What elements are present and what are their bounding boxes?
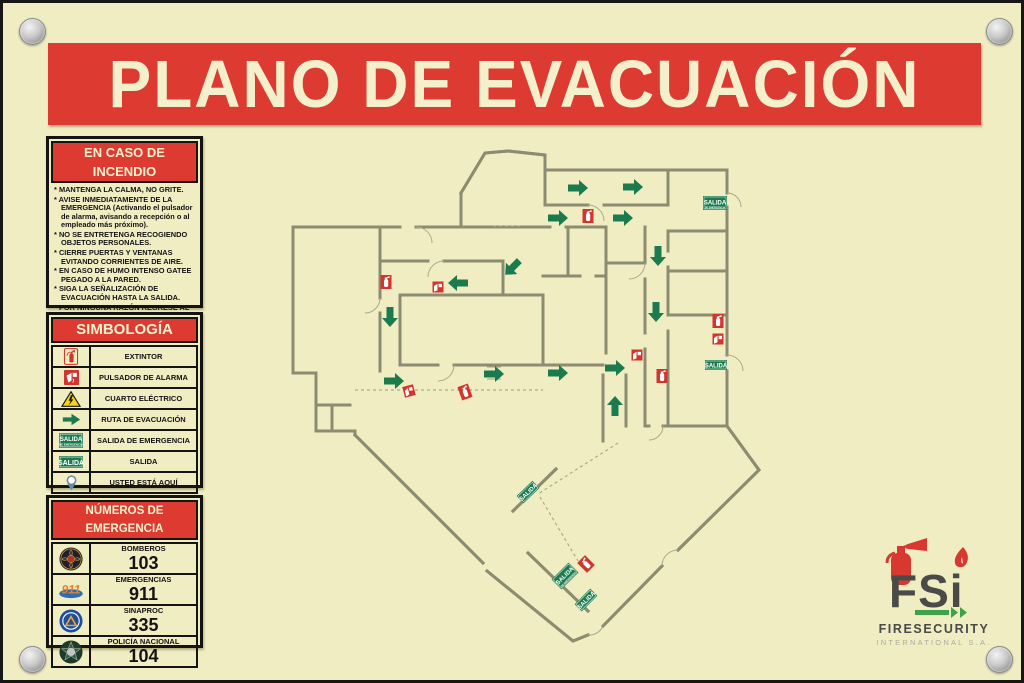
extinguisher-icon (583, 209, 594, 223)
emergency-number-row: BOMBEROS 103 (51, 542, 198, 575)
emergency-number-row: SINAPROC 335 (51, 606, 198, 637)
title-banner: PLANO DE EVACUACIÓN (48, 43, 981, 125)
legend-row: SALIDA SALIDA (51, 452, 198, 473)
instruction-item: MANTENGA LA CALMA, NO GRITE. (54, 186, 196, 195)
alarm-button-icon (53, 368, 91, 387)
legend-header: SIMBOLOGÍA (51, 317, 198, 343)
screw-bottom-left (19, 646, 46, 673)
phone-number: 103 (128, 554, 158, 572)
exit-sign: SALIDA (705, 360, 728, 370)
screw-top-right (986, 18, 1013, 45)
911-badge: 911 (53, 575, 91, 604)
service-name: EMERGENCIAS (116, 576, 172, 584)
page-title: PLANO DE EVACUACIÓN (109, 45, 921, 123)
sinaproc-badge (53, 606, 91, 635)
evacuation-route-icon (53, 410, 91, 429)
legend-panel: SIMBOLOGÍA EXTINTOR PULSADOR DE ALARMA C… (46, 312, 203, 488)
alarm-button-icon (632, 350, 643, 361)
instruction-item: NO SE ENTRETENGA RECOGIENDO OBJETOS PERS… (54, 231, 196, 248)
legend-row: EXTINTOR (51, 345, 198, 368)
evacuation-arrow-icon (548, 365, 568, 381)
instruction-item: EN CASO DE HUMO INTENSO GATEE PEGADO A L… (54, 267, 196, 284)
instruction-item: SIGA LA SEÑALIZACIÓN DE EVACUACIÓN HASTA… (54, 285, 196, 302)
emergency-numbers-rows: BOMBEROS 103 911 EMERGENCIAS 911 SINA (51, 542, 198, 668)
service-name: BOMBEROS (121, 545, 165, 553)
evacuation-arrow-icon (548, 210, 568, 226)
emergency-numbers-panel: NÚMEROS DE EMERGENCIA BOMBEROS 103 911 E… (46, 495, 203, 648)
svg-text:SALIDA: SALIDA (705, 363, 728, 369)
fsi-logo: FSi FIRESECURITY INTERNATIONAL S.A. (875, 537, 995, 652)
legend-label: CUARTO ELÉCTRICO (91, 389, 196, 408)
legend-row: USTED ESTÁ AQUÍ (51, 473, 198, 494)
service-name: POLICÍA NACIONAL (108, 638, 180, 646)
extinguisher-icon (713, 314, 724, 328)
extinguisher-icon (53, 347, 91, 366)
evacuation-arrow-icon (648, 302, 664, 322)
national-police-badge (53, 637, 91, 666)
emergency-numbers-header: NÚMEROS DE EMERGENCIA (51, 500, 198, 540)
legend-label: SALIDA (91, 452, 196, 471)
alarm-button-icon (433, 282, 444, 293)
emergency-number-row: POLICÍA NACIONAL 104 (51, 637, 198, 668)
evacuation-arrow-icon (607, 396, 623, 416)
alarm-button-icon (713, 334, 724, 345)
emergency-exit-sign: SALIDA DE EMERGENCIA (552, 563, 579, 590)
emergency-exit-sign-icon: SALIDADE EMERGENCIA (53, 431, 91, 450)
legend-row: RUTA DE EVACUACIÓN (51, 410, 198, 431)
evacuation-arrow-icon (382, 307, 398, 327)
phone-number: 104 (128, 647, 158, 665)
svg-text:SALIDA: SALIDA (59, 459, 83, 466)
door-arcs (365, 193, 743, 635)
legend-rows: EXTINTOR PULSADOR DE ALARMA CUARTO ELÉCT… (51, 345, 198, 494)
electrical-room-icon (53, 389, 91, 408)
legend-row: SALIDADE EMERGENCIA SALIDA DE EMERGENCIA (51, 431, 198, 452)
legend-label: PULSADOR DE ALARMA (91, 368, 196, 387)
service-name: SINAPROC (124, 607, 164, 615)
evacuation-arrow-icon (623, 179, 643, 195)
instruction-item: AVISE INMEDIATAMENTE DE LA EMERGENCIA (A… (54, 196, 196, 230)
firefighters-badge (53, 544, 91, 573)
legend-label: SALIDA DE EMERGENCIA (91, 431, 196, 450)
exit-sign-icon: SALIDA (53, 452, 91, 471)
evacuation-arrow-icon (605, 360, 625, 376)
floor-plan-icons: SALIDA DE EMERGENCIA SALIDA SALIDA SALID… (381, 179, 728, 611)
phone-number: 911 (129, 585, 158, 603)
logo-subtitle: INTERNATIONAL S.A. (876, 638, 991, 647)
legend-label: EXTINTOR (91, 347, 196, 366)
extinguisher-icon (457, 384, 472, 401)
evacuation-arrow-icon (484, 366, 504, 382)
you-are-here-icon (53, 473, 91, 492)
floor-plan-walls (293, 151, 759, 641)
evacuation-arrow-icon (448, 275, 468, 291)
screw-top-left (19, 18, 46, 45)
extinguisher-icon (657, 369, 668, 383)
emergency-number-row: 911 EMERGENCIAS 911 (51, 575, 198, 606)
extinguisher-icon (577, 555, 595, 573)
legend-label: USTED ESTÁ AQUÍ (91, 473, 196, 492)
svg-text:DE EMERGENCIA: DE EMERGENCIA (59, 442, 83, 446)
evacuation-sign-board: PLANO DE EVACUACIÓN EN CASO DE INCENDIO … (0, 0, 1024, 683)
legend-label: RUTA DE EVACUACIÓN (91, 410, 196, 429)
evacuation-arrow-icon (384, 373, 404, 389)
instruction-item: CIERRE PUERTAS Y VENTANAS EVITANDO CORRI… (54, 249, 196, 266)
evacuation-arrow-icon (650, 246, 666, 266)
phone-number: 335 (128, 616, 158, 634)
exit-sign: SALIDA (516, 480, 539, 503)
emergency-exit-sign: SALIDA DE EMERGENCIA (703, 196, 727, 210)
legend-row: CUARTO ELÉCTRICO (51, 389, 198, 410)
svg-text:911: 911 (62, 583, 81, 596)
evacuation-arrow-icon (613, 210, 633, 226)
logo-name: FIRESECURITY (879, 622, 990, 636)
alarm-button-icon (402, 384, 415, 397)
floor-plan: SALIDA DE EMERGENCIA SALIDA SALIDA SALID… (288, 143, 908, 643)
legend-row: PULSADOR DE ALARMA (51, 368, 198, 389)
fire-instructions-panel: EN CASO DE INCENDIO MANTENGA LA CALMA, N… (46, 136, 203, 308)
extinguisher-icon (381, 275, 392, 289)
svg-text:DE EMERGENCIA: DE EMERGENCIA (705, 207, 725, 210)
evacuation-arrow-icon (568, 180, 588, 196)
fire-instructions-header: EN CASO DE INCENDIO (51, 141, 198, 183)
